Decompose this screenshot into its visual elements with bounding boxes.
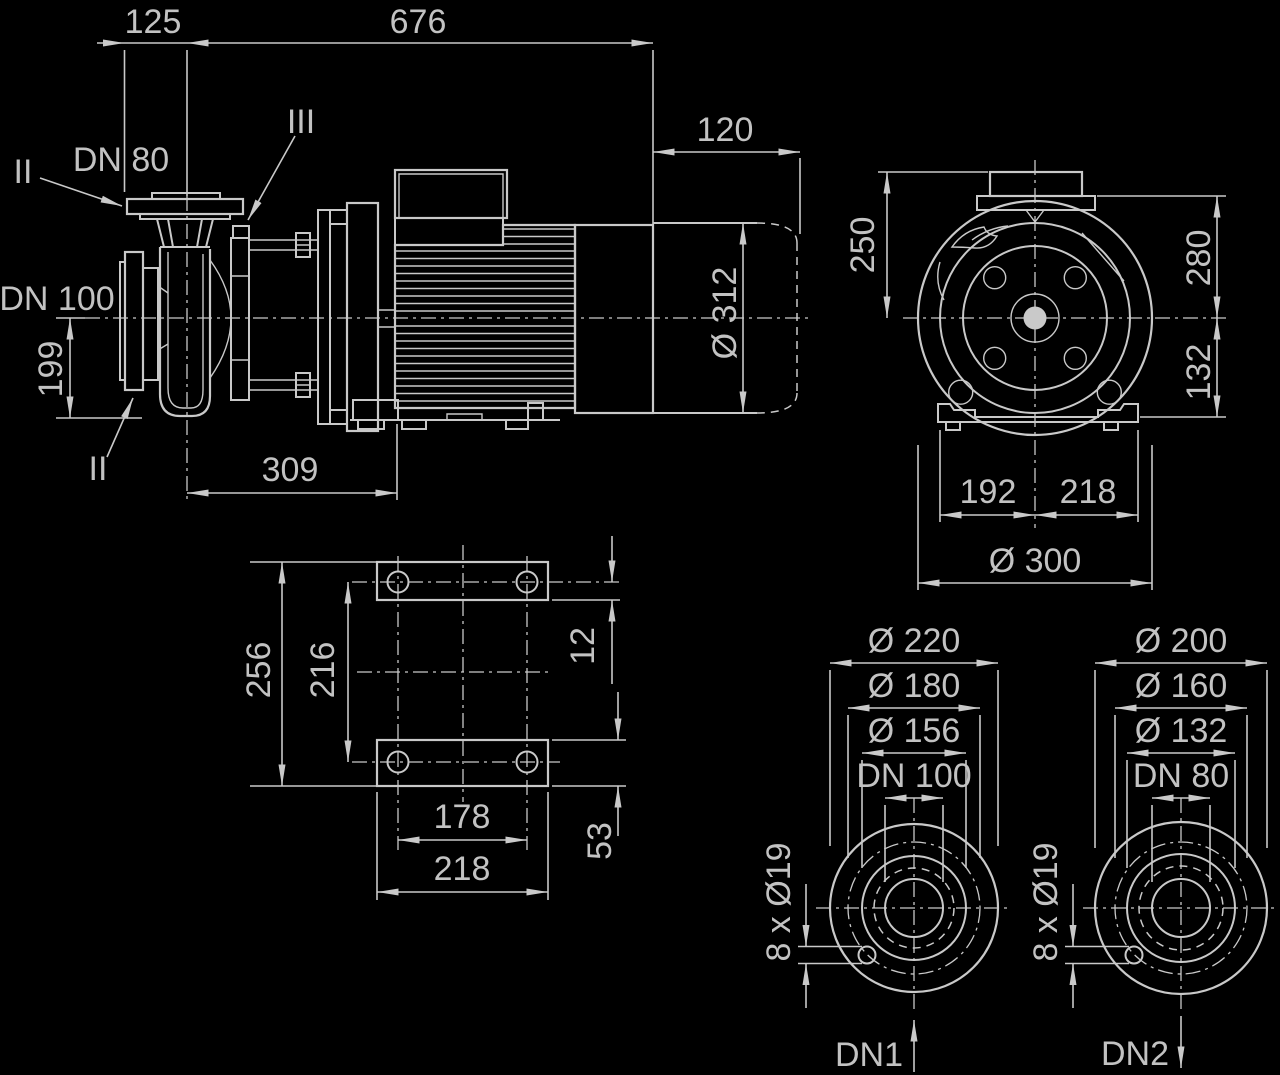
flange2-geometry — [1083, 798, 1279, 1012]
dim-309-label: 309 — [262, 451, 319, 489]
flange-bolt-hole — [1126, 947, 1143, 964]
section-ii-bottom-leader — [107, 398, 133, 457]
dim-125-label: 125 — [125, 3, 182, 41]
label-dn100: DN 100 — [0, 280, 115, 318]
side-dimension-lines — [70, 43, 800, 493]
dim-192-label: 192 — [960, 473, 1017, 511]
terminal-box — [395, 170, 507, 218]
dim-280-label: 280 — [1180, 230, 1218, 287]
suction-flange — [125, 252, 143, 390]
dim-12-label: 12 — [564, 627, 602, 665]
dim-dia200-label: Ø 200 — [1135, 622, 1228, 660]
suction-flange-view-dn100: Ø 220 Ø 180 Ø 156 DN 100 8 x Ø19 DN1 — [760, 622, 1012, 1074]
dim-120-label: 120 — [697, 111, 754, 149]
vent-plug — [233, 226, 249, 238]
discharge-flange — [127, 199, 243, 214]
flange1-geometry — [816, 798, 1012, 1012]
section-ii-bottom-label: II — [89, 450, 108, 488]
front-view: 250 280 132 192 218 Ø 300 — [844, 160, 1228, 590]
dim-199-label: 199 — [32, 341, 70, 398]
dim-dia132-label: Ø 132 — [1135, 712, 1228, 750]
dim-218-label: 218 — [1060, 473, 1117, 511]
motor-body — [395, 225, 575, 408]
flange-bolt-hole — [859, 947, 876, 964]
dim-dia300-label: Ø 300 — [989, 542, 1082, 580]
section-iii-leader — [248, 136, 295, 220]
motor-cooling-fins — [395, 229, 575, 401]
motor-end-bell — [575, 225, 653, 413]
dim-53-label: 53 — [581, 822, 619, 860]
dim-dia180-label: Ø 180 — [868, 667, 961, 705]
terminal-box-front — [990, 172, 1082, 196]
dim-dia160-label: Ø 160 — [1135, 667, 1228, 705]
dim-dia220-label: Ø 220 — [868, 622, 961, 660]
motor-flange — [347, 203, 378, 431]
dim-dia156-label: Ø 156 — [868, 712, 961, 750]
label-dn80: DN 80 — [73, 141, 169, 179]
front-dimension-lines — [878, 172, 1226, 590]
pump-dimension-drawing: 125 676 120 Ø 312 199 309 DN 80 DN 100 I… — [0, 0, 1280, 1075]
front-feet — [938, 404, 1138, 430]
dim-178-label: 178 — [434, 798, 491, 836]
dim-8x19b-label: 8 x Ø19 — [1027, 842, 1065, 961]
base-dimension-lines — [250, 536, 626, 900]
dim-dn100-label: DN 100 — [856, 757, 971, 795]
dim-250-label: 250 — [844, 217, 882, 274]
discharge-flange-view-dn80: Ø 200 Ø 160 Ø 132 DN 80 8 x Ø19 DN2 — [1027, 622, 1279, 1073]
casing-cover — [231, 238, 249, 400]
dim-218b-label: 218 — [434, 850, 491, 888]
bearing-bracket — [318, 210, 330, 424]
bracket-foot — [353, 400, 398, 420]
dim-dia312-label: Ø 312 — [706, 267, 744, 360]
port-dn2-label: DN2 — [1101, 1035, 1169, 1073]
base-plate-view: 256 216 12 53 178 218 — [240, 536, 626, 900]
dim-132-label: 132 — [1180, 344, 1218, 401]
port-dn1-label: DN1 — [835, 1036, 903, 1074]
dim-256-label: 256 — [240, 642, 278, 699]
section-ii-leader — [40, 178, 122, 206]
pump-side-geometry — [120, 170, 797, 431]
dim-8x19-label: 8 x Ø19 — [760, 842, 798, 961]
dim-676-label: 676 — [390, 3, 447, 41]
tie-bolts — [249, 240, 318, 390]
dim-dn80-label: DN 80 — [1133, 757, 1229, 795]
section-iii-label: III — [287, 103, 315, 141]
dim-216-label: 216 — [304, 642, 342, 699]
side-view: 125 676 120 Ø 312 199 309 DN 80 DN 100 I… — [0, 3, 812, 500]
section-ii-label: II — [14, 153, 33, 191]
